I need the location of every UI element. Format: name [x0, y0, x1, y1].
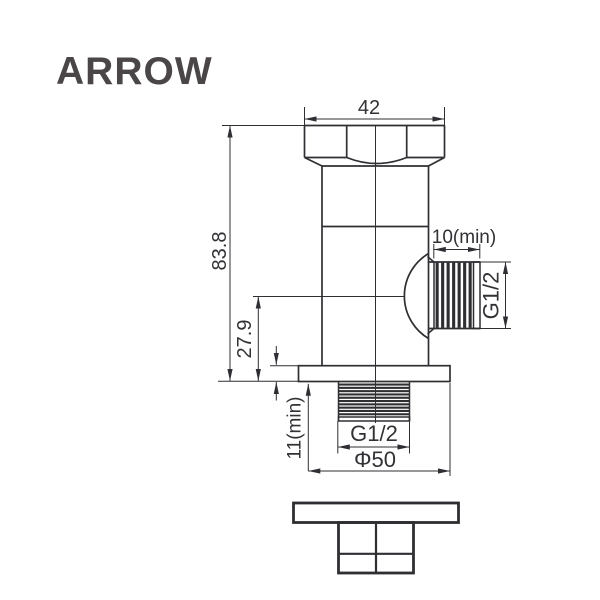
cap-width-label: 42 [358, 97, 380, 119]
dimension-cap-width: 42 [305, 97, 445, 126]
outlet-boss-arc [404, 254, 428, 339]
inlet-thread-size-label: G1/2 [350, 421, 398, 446]
bottom-inlet-thread [339, 382, 410, 422]
dimension-outlet-center-height: 27.9 [234, 297, 258, 382]
dimension-overall-height: 83.8 [209, 126, 305, 382]
valve-body [253, 126, 429, 424]
valve-front-view [253, 126, 480, 424]
technical-drawing-canvas: ARROW [0, 0, 600, 600]
wall-plate [294, 503, 459, 523]
inlet-thread-length-label: 11(min) [285, 397, 306, 460]
dimension-outlet-thread-length: 10(min) [432, 227, 496, 259]
hex-cap [305, 126, 445, 167]
outlet-thread-size-label: G1/2 [479, 272, 504, 320]
dimension-flange-thickness-arrows [270, 346, 299, 401]
base-flange [299, 366, 451, 382]
valve-dimension-drawing: ARROW [0, 0, 600, 600]
base-diameter-label: Φ50 [354, 447, 396, 472]
outlet-thread-length-label: 10(min) [432, 227, 496, 248]
dimension-inlet-thread-length: 11(min) [285, 384, 309, 471]
dimension-outlet-thread-size: G1/2 [479, 262, 511, 329]
wall-plate-part [294, 503, 459, 573]
overall-height-label: 83.8 [209, 232, 231, 271]
outlet-center-height-label: 27.9 [234, 320, 256, 359]
side-outlet-thread [428, 257, 481, 335]
brand-logo: ARROW [56, 50, 213, 93]
